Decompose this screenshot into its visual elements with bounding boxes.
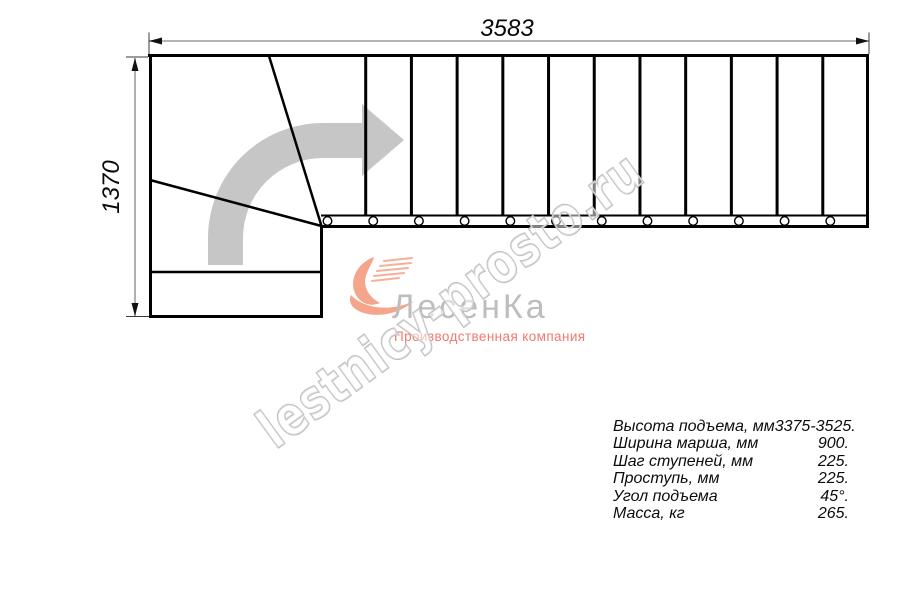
spec-row-mass: Масса, кг 265. bbox=[613, 505, 849, 522]
specs-table: Высота подъема, мм 3375-3525. Ширина мар… bbox=[613, 418, 849, 522]
spec-row-height: Высота подъема, мм 3375-3525. bbox=[613, 418, 849, 435]
bolt-circle bbox=[323, 217, 332, 226]
spec-label: Ширина марша, мм bbox=[613, 435, 758, 452]
bolt-circle bbox=[735, 217, 744, 226]
spec-label: Угол подъема bbox=[613, 488, 718, 505]
watermark-text: lestnicy-prosto.ru bbox=[246, 139, 655, 460]
dim-arrow-left-icon bbox=[149, 38, 162, 45]
spec-label: Высота подъема, мм bbox=[613, 418, 775, 435]
page: 3583 1370 ЛесенКа Производственная компа… bbox=[0, 0, 900, 600]
spec-row-tread: Проступь, мм 225. bbox=[613, 470, 849, 487]
spec-label: Масса, кг bbox=[613, 505, 685, 522]
spec-value: 45°. bbox=[820, 488, 849, 505]
direction-arrow-icon bbox=[208, 104, 404, 265]
spec-value: 3375-3525. bbox=[775, 418, 856, 435]
spec-value: 900. bbox=[818, 435, 849, 452]
spec-value: 225. bbox=[818, 453, 849, 470]
dim-arrow-down-icon bbox=[132, 303, 139, 316]
spec-value: 265. bbox=[818, 505, 849, 522]
dimension-left: 1370 bbox=[98, 57, 149, 317]
spec-row-step: Шаг ступеней, мм 225. bbox=[613, 453, 849, 470]
logo-steps-icon bbox=[372, 258, 412, 281]
bolt-circle bbox=[689, 217, 698, 226]
bolt-circle bbox=[780, 217, 789, 226]
bolt-circle bbox=[415, 217, 424, 226]
spec-label: Проступь, мм bbox=[613, 470, 719, 487]
dim-arrow-up-icon bbox=[132, 58, 139, 71]
spec-row-width: Ширина марша, мм 900. bbox=[613, 435, 849, 452]
bolt-circle bbox=[369, 217, 378, 226]
bolt-circle bbox=[460, 217, 469, 226]
spec-label: Шаг ступеней, мм bbox=[613, 453, 753, 470]
dimension-left-label: 1370 bbox=[98, 160, 125, 214]
dimension-top-label: 3583 bbox=[480, 15, 534, 42]
bolt-circle bbox=[643, 217, 652, 226]
spec-value: 225. bbox=[818, 470, 849, 487]
bolt-circle bbox=[826, 217, 835, 226]
watermark: lestnicy-prosto.ru bbox=[246, 139, 655, 460]
spec-row-angle: Угол подъема 45°. bbox=[613, 488, 849, 505]
dimension-top: 3583 bbox=[149, 15, 869, 54]
dim-arrow-right-icon bbox=[856, 38, 869, 45]
